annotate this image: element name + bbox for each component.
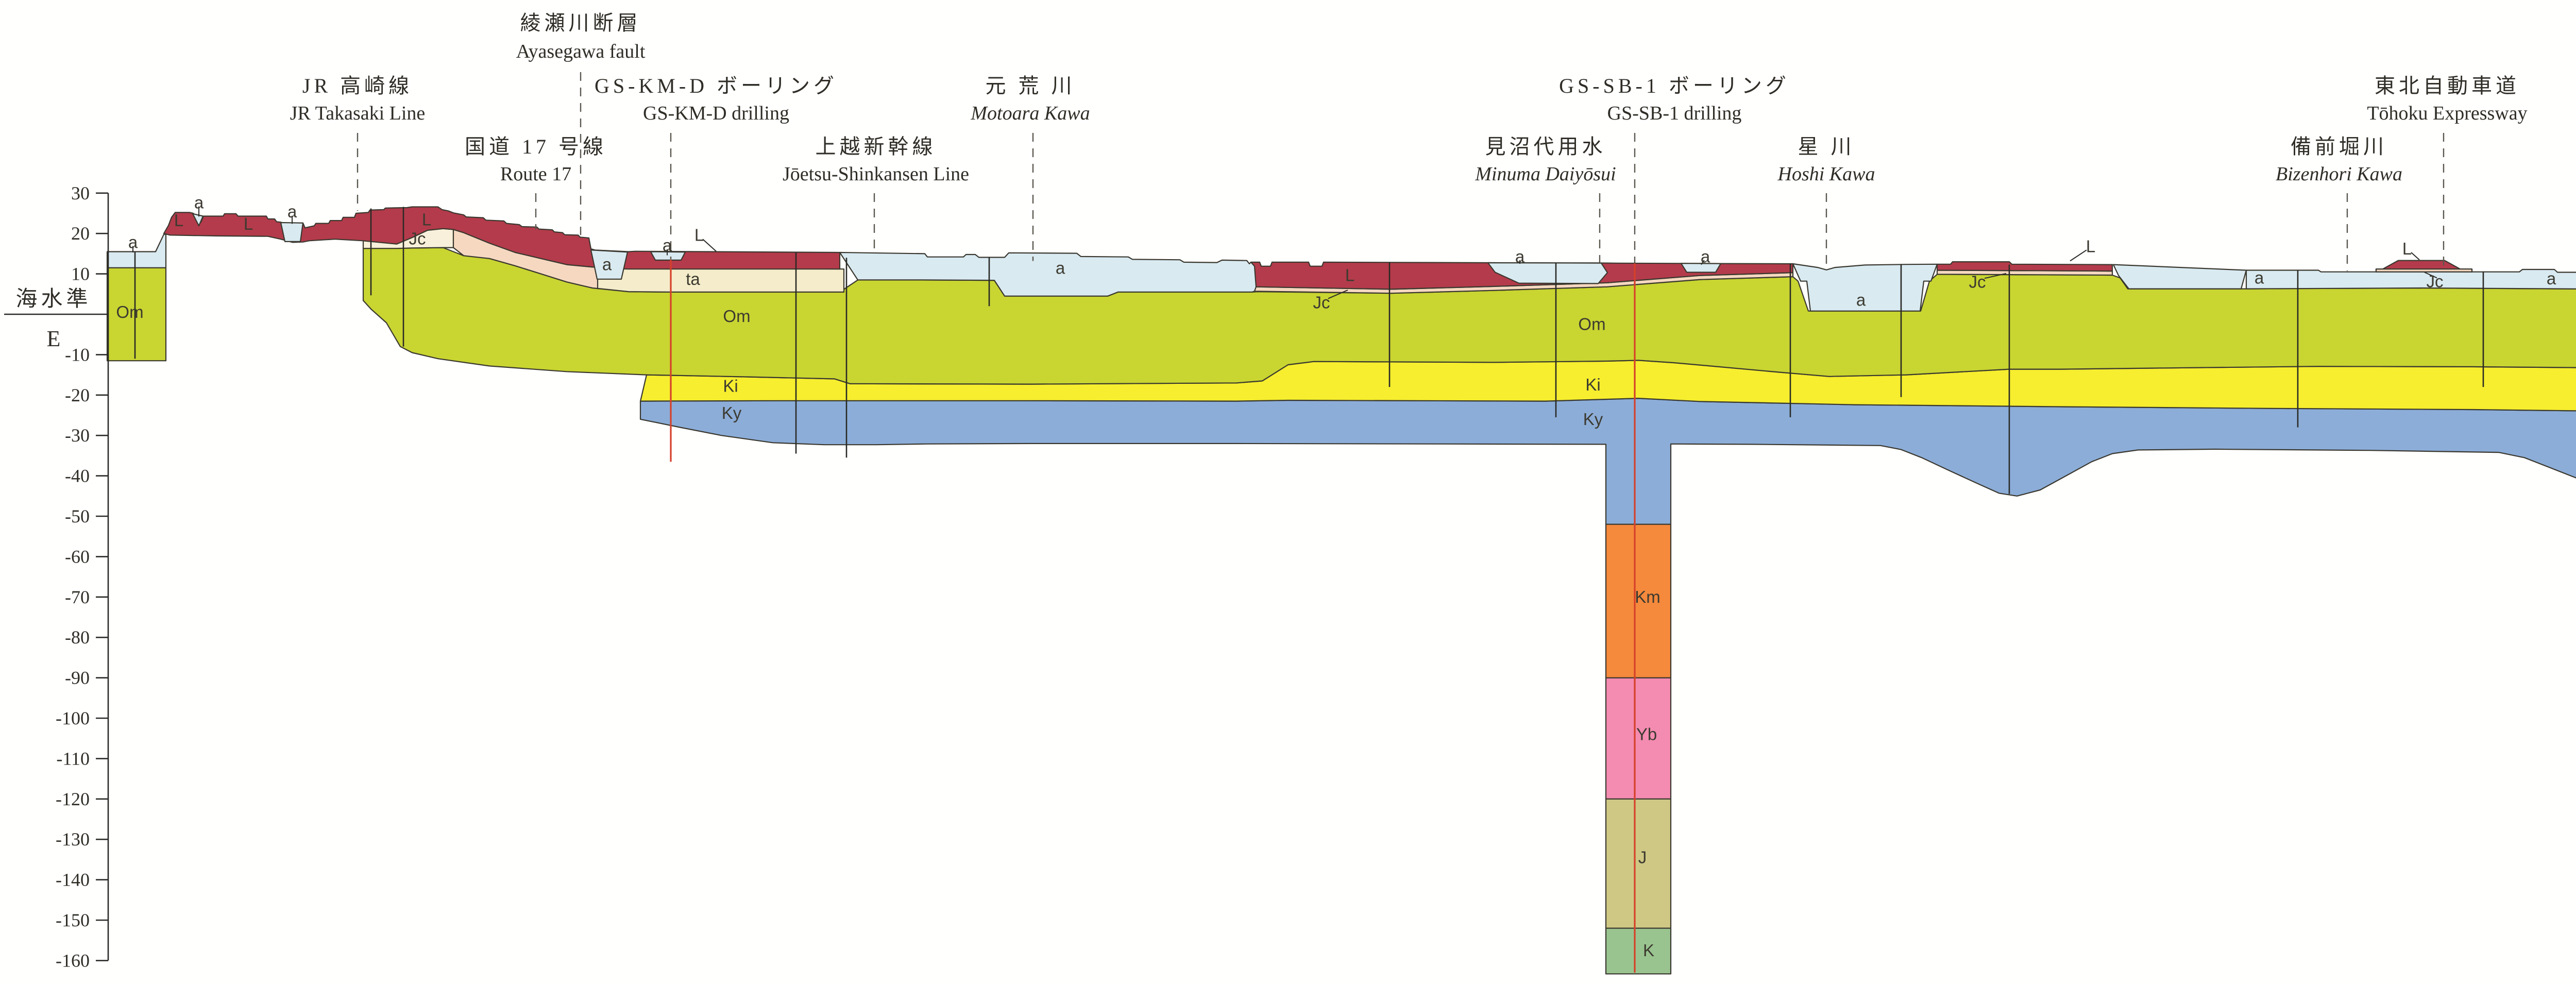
feature-label-jp: 上越新幹線 — [816, 135, 937, 158]
unit-label-J: J — [1638, 848, 1647, 867]
feature-label-jp: GS-SB-1 ボーリング — [1559, 74, 1790, 97]
cross-section-svg: 302010-10-20-30-40-50-60-70-80-90-100-11… — [0, 0, 2576, 983]
unit-label-Km: Km — [1635, 587, 1660, 606]
left-axis-tick-label: -60 — [65, 546, 90, 567]
feature-label-jp: 星 川 — [1798, 135, 1855, 158]
left-axis-tick-label: -50 — [65, 506, 90, 527]
unit-label-L: L — [2086, 236, 2095, 256]
unit-label-a: a — [128, 232, 138, 251]
unit-label-a: a — [663, 236, 672, 255]
unit-label-Jc: Jc — [2427, 272, 2444, 291]
unit-label-a: a — [1056, 259, 1065, 278]
left-axis-tick-label: -100 — [56, 708, 90, 728]
label-leader — [703, 239, 716, 251]
feature-label-jp: 備前堀川 — [2291, 135, 2387, 158]
strata-bodies — [107, 207, 2576, 974]
feature-label-jp: 国道 17 号線 — [465, 135, 607, 158]
unit-label-L: L — [422, 210, 431, 229]
stratum-col-k — [1606, 928, 1671, 974]
feature-label-en: Ayasegawa fault — [516, 41, 646, 62]
unit-label-a: a — [1701, 247, 1710, 266]
unit-label-L: L — [174, 211, 183, 230]
feature-label-en: JR Takasaki Line — [290, 103, 426, 124]
feature-label-jp: 元 荒 川 — [986, 74, 1076, 97]
unit-label-Ki: Ki — [723, 377, 738, 396]
stratum-a-notch-2 — [281, 223, 303, 242]
left-axis-tick-label: -20 — [65, 385, 90, 405]
left-axis-tick-label: 20 — [71, 223, 90, 244]
unit-label-Ky: Ky — [722, 403, 742, 422]
label-leader — [2070, 250, 2087, 261]
unit-label-Om: Om — [116, 302, 143, 321]
left-axis-tick-label: -150 — [56, 910, 90, 930]
left-axis-tick-label: 30 — [71, 183, 90, 204]
left-axis-tick-label: -30 — [65, 425, 90, 446]
unit-label-Ki: Ki — [1585, 375, 1600, 394]
unit-label-Jc: Jc — [1969, 272, 1986, 291]
feature-label-jp: 見沼代用水 — [1485, 135, 1606, 158]
unit-label-L: L — [244, 214, 253, 233]
sea-level-label-jp: 海水準 — [15, 287, 91, 311]
feature-label-jp: 東北自動車道 — [2375, 74, 2520, 97]
unit-label-Yb: Yb — [1636, 724, 1657, 743]
label-leader — [2411, 252, 2419, 260]
feature-label-jp: 綾瀬川断層 — [520, 11, 641, 35]
left-axis-tick-label: -110 — [56, 748, 90, 769]
feature-label-en: Bizenhori Kawa — [2276, 163, 2402, 185]
unit-label-a: a — [1515, 247, 1525, 266]
stratum-strip-redraw-3 — [2376, 269, 2472, 272]
geological-cross-section: 302010-10-20-30-40-50-60-70-80-90-100-11… — [0, 0, 2576, 983]
left-axis-tick-label: 10 — [71, 264, 90, 284]
unit-label-L: L — [1345, 266, 1354, 285]
stratum-loam-low-2 — [1937, 262, 2112, 271]
feature-label-en: Route 17 — [500, 163, 571, 185]
feature-label-en: Motoara Kawa — [970, 103, 1090, 124]
unit-label-a: a — [1856, 291, 1866, 310]
unit-label-Jc: Jc — [409, 229, 426, 248]
feature-label-jp: JR 高崎線 — [302, 74, 413, 97]
left-axis-tick-label: -40 — [65, 466, 90, 486]
unit-label-ta: ta — [686, 269, 700, 289]
feature-label-jp: GS-KM-D ボーリング — [595, 74, 838, 97]
left-axis-tick-label: -90 — [65, 668, 90, 688]
unit-label-L: L — [2402, 239, 2412, 258]
unit-label-L: L — [694, 225, 704, 244]
unit-label-a: a — [2547, 269, 2556, 288]
unit-label-Om: Om — [723, 307, 750, 326]
unit-label-a: a — [194, 193, 204, 212]
unit-label-Ky: Ky — [1583, 410, 1603, 429]
feature-label-en: Hoshi Kawa — [1777, 163, 1875, 185]
left-axis-tick-label: -140 — [56, 870, 90, 890]
feature-label-en: Tōhoku Expressway — [2367, 103, 2527, 124]
unit-label-a: a — [602, 255, 612, 274]
stratum-ta-band — [598, 267, 844, 292]
left-axis-tick-label: -130 — [56, 829, 90, 850]
unit-label-a: a — [287, 202, 297, 221]
left-axis-tick-label: -80 — [65, 627, 90, 648]
unit-label-a: a — [2255, 268, 2264, 287]
feature-label-en: GS-KM-D drilling — [643, 103, 789, 124]
unit-label-K: K — [1643, 941, 1654, 960]
feature-label-en: Jōetsu-Shinkansen Line — [783, 163, 969, 185]
endpoint-letter-e: E — [47, 326, 61, 351]
feature-label-en: Minuma Daiyōsui — [1475, 163, 1616, 185]
unit-label-Jc: Jc — [1313, 293, 1330, 312]
text-labels: 綾瀬川断層Ayasegawa faultJR 高崎線JR Takasaki Li… — [116, 11, 2576, 960]
left-axis-tick-label: -70 — [65, 587, 90, 607]
left-axis-tick-label: -10 — [65, 344, 90, 365]
left-axis-tick-label: -160 — [56, 950, 90, 971]
stratum-mesa-redraw-1 — [2383, 261, 2460, 269]
stratum-a-channel-2 — [2113, 265, 2246, 289]
left-axis-tick-label: -120 — [56, 789, 90, 809]
feature-label-en: GS-SB-1 drilling — [1607, 103, 1742, 124]
unit-label-Om: Om — [1578, 315, 1605, 334]
